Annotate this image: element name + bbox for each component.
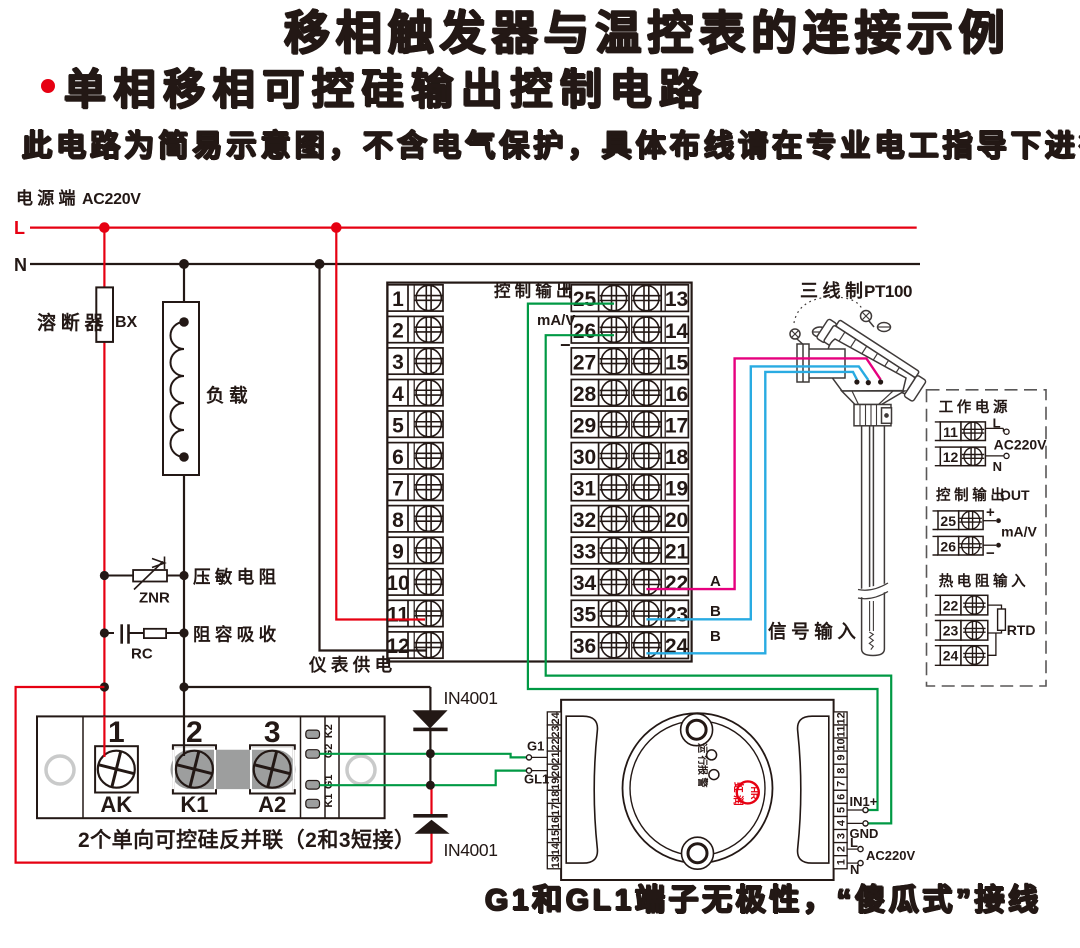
svg-text:19: 19 (550, 778, 562, 790)
svg-text:G1: G1 (323, 774, 335, 789)
svg-text:3: 3 (264, 716, 281, 749)
svg-text:33: 33 (573, 541, 596, 564)
svg-text:电源端: 电源端 (16, 188, 80, 208)
svg-text:信号输入: 信号输入 (768, 621, 861, 642)
svg-text:26: 26 (940, 539, 956, 555)
svg-text:K2: K2 (323, 724, 335, 738)
svg-text:2个单向可控硅反并联（2和3短接）: 2个单向可控硅反并联（2和3短接） (78, 828, 416, 852)
svg-text:报警: 报警 (696, 765, 709, 790)
svg-text:热电阻输入: 热电阻输入 (939, 572, 1030, 590)
svg-text:17: 17 (550, 804, 562, 816)
svg-text:L: L (14, 218, 25, 238)
svg-text:11: 11 (943, 424, 958, 440)
svg-text:A2: A2 (258, 792, 286, 817)
svg-text:7: 7 (836, 781, 848, 787)
svg-text:1: 1 (392, 288, 404, 311)
svg-text:A: A (710, 573, 721, 590)
svg-text:GL1: GL1 (524, 772, 549, 787)
svg-text:8: 8 (836, 768, 848, 774)
svg-text:18: 18 (665, 446, 689, 469)
svg-text:16: 16 (665, 383, 688, 406)
svg-text:−: − (986, 545, 995, 562)
svg-text:N: N (993, 459, 1002, 474)
svg-text:RC: RC (131, 646, 153, 663)
svg-text:IN4001: IN4001 (444, 840, 498, 860)
svg-text:13: 13 (665, 288, 688, 311)
svg-text:9: 9 (836, 755, 848, 761)
svg-text:B: B (710, 603, 721, 620)
svg-text:8: 8 (392, 509, 404, 532)
svg-text:10: 10 (836, 738, 848, 750)
svg-text:mA/V: mA/V (537, 312, 575, 329)
svg-text:负载: 负载 (206, 385, 252, 406)
svg-text:AC220V: AC220V (82, 191, 141, 208)
svg-text:20: 20 (550, 765, 562, 777)
svg-text:HR: HR (749, 787, 759, 800)
svg-text:14: 14 (665, 320, 689, 343)
svg-text:31: 31 (573, 478, 597, 501)
svg-text:仪表供电: 仪表供电 (308, 655, 397, 675)
svg-text:控制输出: 控制输出 (936, 486, 1009, 504)
svg-text:10: 10 (386, 572, 409, 595)
svg-text:AK: AK (100, 792, 132, 817)
svg-text:L: L (850, 835, 858, 850)
svg-text:5: 5 (392, 414, 404, 437)
svg-text:4: 4 (392, 383, 404, 406)
svg-text:26: 26 (573, 320, 596, 343)
svg-text:34: 34 (573, 572, 597, 595)
svg-text:9: 9 (392, 541, 404, 564)
svg-text:30: 30 (573, 446, 596, 469)
svg-text:13: 13 (550, 856, 562, 868)
svg-text:RTD: RTD (1007, 622, 1036, 638)
svg-text:16: 16 (550, 817, 562, 829)
svg-text:29: 29 (573, 414, 596, 437)
svg-text:15: 15 (665, 351, 689, 374)
svg-text:2: 2 (186, 716, 203, 749)
svg-text:11: 11 (387, 604, 410, 627)
svg-text:23: 23 (550, 725, 562, 737)
svg-text:1: 1 (108, 716, 125, 749)
svg-text:压敏电阻: 压敏电阻 (193, 567, 281, 587)
svg-text:B: B (710, 628, 721, 645)
svg-text:AC220V: AC220V (866, 848, 915, 863)
svg-text:15: 15 (550, 830, 562, 842)
svg-text:+: + (561, 279, 572, 300)
svg-text:G1: G1 (527, 739, 544, 754)
svg-text:N: N (14, 255, 27, 275)
svg-text:OUT: OUT (1000, 487, 1030, 503)
svg-text:22: 22 (665, 572, 688, 595)
svg-text:24: 24 (665, 635, 689, 658)
svg-text:23: 23 (665, 604, 688, 627)
svg-text:3: 3 (836, 833, 848, 839)
svg-text:27: 27 (573, 351, 596, 374)
svg-text:BX: BX (115, 314, 138, 331)
svg-text:7: 7 (392, 477, 404, 500)
svg-text:5: 5 (836, 807, 848, 813)
svg-text:PT100: PT100 (864, 282, 912, 301)
svg-text:2: 2 (836, 846, 848, 852)
svg-text:11: 11 (836, 726, 848, 738)
svg-text:19: 19 (665, 478, 688, 501)
svg-text:12: 12 (943, 449, 959, 465)
svg-text:25: 25 (940, 513, 956, 529)
svg-text:21: 21 (665, 541, 689, 564)
svg-text:三线制: 三线制 (800, 280, 868, 301)
svg-text:4: 4 (836, 819, 848, 826)
svg-text:1: 1 (836, 859, 848, 865)
svg-text:35: 35 (573, 604, 597, 627)
svg-text:L: L (993, 415, 1001, 430)
svg-text:22: 22 (943, 598, 959, 614)
svg-text:工作电源: 工作电源 (939, 398, 1012, 416)
svg-text:AC220V: AC220V (994, 437, 1048, 453)
svg-text:24: 24 (550, 711, 562, 724)
svg-text:36: 36 (573, 635, 596, 658)
svg-text:28: 28 (573, 383, 597, 406)
svg-text:21: 21 (550, 751, 562, 763)
svg-text:−: − (560, 335, 571, 355)
svg-text:IN4001: IN4001 (444, 688, 498, 708)
svg-text:23: 23 (943, 623, 959, 639)
svg-text:32: 32 (573, 509, 596, 532)
svg-text:18: 18 (550, 791, 562, 803)
svg-text:溶断器: 溶断器 (37, 311, 108, 334)
svg-text:+: + (986, 504, 995, 521)
svg-text:ZNR: ZNR (139, 590, 170, 607)
svg-text:14: 14 (550, 842, 562, 855)
svg-text:K1: K1 (180, 792, 208, 817)
svg-text:12: 12 (836, 712, 848, 724)
svg-text:17: 17 (665, 414, 688, 437)
svg-text:2: 2 (392, 320, 404, 343)
svg-text:G2: G2 (323, 744, 335, 759)
svg-text:6: 6 (836, 794, 848, 800)
svg-text:20: 20 (665, 509, 688, 532)
svg-text:3: 3 (392, 351, 404, 374)
svg-text:阻容吸收: 阻容吸收 (193, 625, 281, 645)
svg-text:22: 22 (550, 738, 562, 750)
svg-text:IN1+: IN1+ (850, 794, 878, 809)
svg-text:6: 6 (392, 446, 404, 469)
svg-text:mA/V: mA/V (1001, 524, 1037, 540)
svg-text:N: N (850, 862, 859, 877)
svg-text:K1: K1 (323, 794, 335, 808)
svg-text:24: 24 (943, 648, 959, 664)
